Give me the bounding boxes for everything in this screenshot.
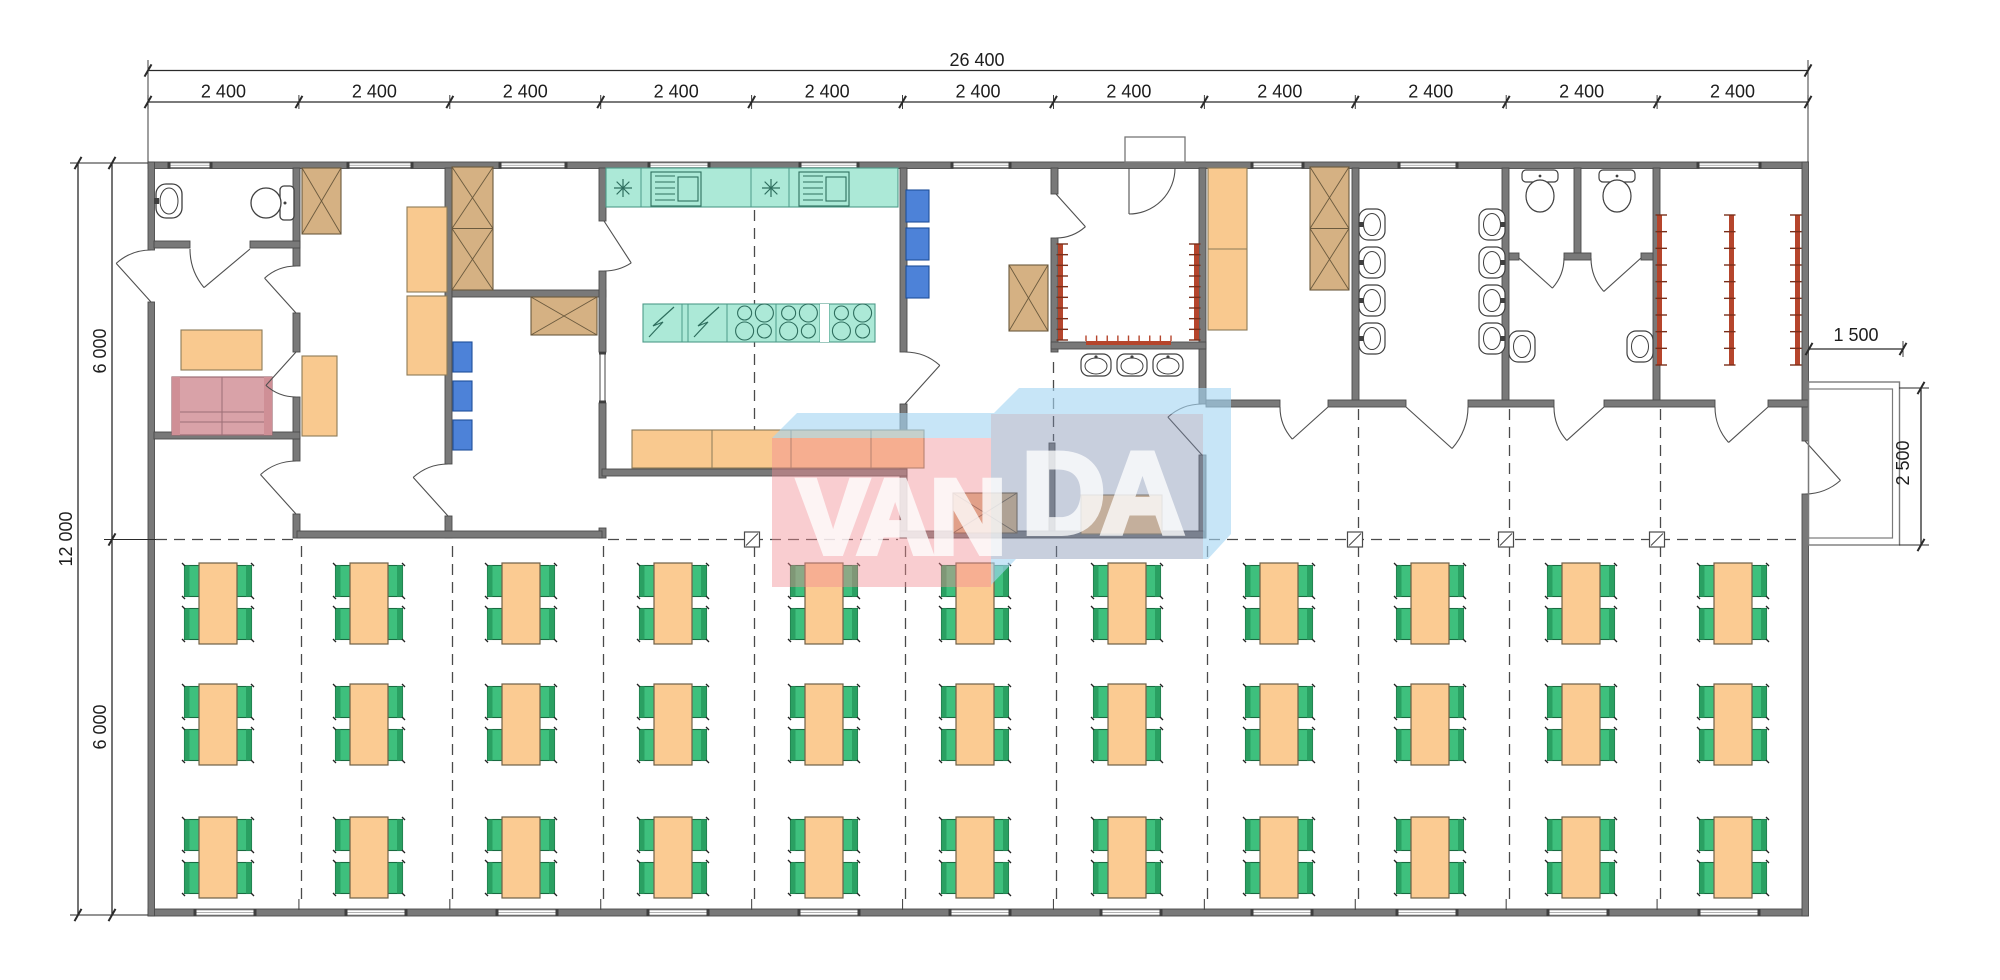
svg-text:2 400: 2 400 xyxy=(201,82,246,102)
svg-text:2 400: 2 400 xyxy=(1710,82,1755,102)
svg-text:6 000: 6 000 xyxy=(90,704,110,749)
svg-text:2 400: 2 400 xyxy=(654,82,699,102)
svg-text:2 400: 2 400 xyxy=(1559,82,1604,102)
svg-text:12 000: 12 000 xyxy=(56,511,76,566)
svg-text:2 400: 2 400 xyxy=(1106,82,1151,102)
svg-text:2 400: 2 400 xyxy=(1408,82,1453,102)
svg-text:6 000: 6 000 xyxy=(90,328,110,373)
svg-text:2 400: 2 400 xyxy=(503,82,548,102)
svg-text:2 400: 2 400 xyxy=(1257,82,1302,102)
svg-text:1 500: 1 500 xyxy=(1833,325,1878,345)
svg-text:2 400: 2 400 xyxy=(955,82,1000,102)
svg-text:VAN: VAN xyxy=(798,459,1003,576)
svg-text:2 500: 2 500 xyxy=(1893,440,1913,485)
svg-text:26 400: 26 400 xyxy=(949,50,1004,70)
svg-text:DA: DA xyxy=(1022,430,1182,558)
svg-text:2 400: 2 400 xyxy=(805,82,850,102)
svg-text:2 400: 2 400 xyxy=(352,82,397,102)
